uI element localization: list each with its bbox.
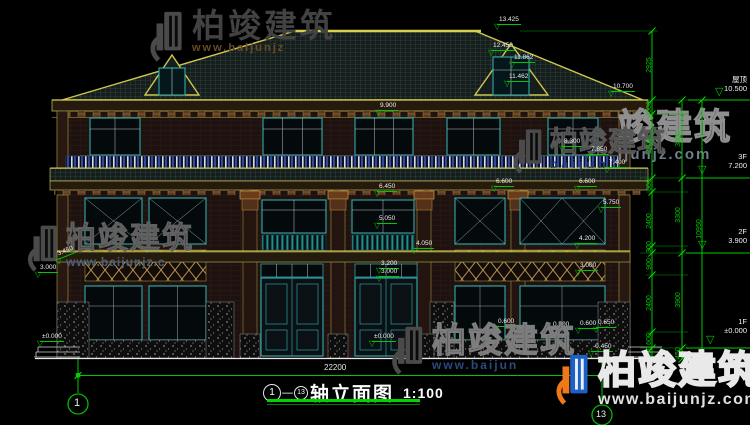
elevation-marker: 11.862▽ [512,54,535,63]
level-triangle-icon: ▽ [493,325,499,333]
elevation-marker: ±0.000▽ [40,333,64,342]
level-triangle-icon: ▽ [35,271,41,279]
level-value: 7.200 [728,161,747,170]
elevation-marker: 4.050▽ [414,240,434,249]
level-triangle-icon: ▽ [588,350,594,358]
level-triangle-icon: ▽ [608,90,614,98]
title-underline-thin [267,404,420,405]
level-triangle-icon: ▽ [509,61,515,69]
level-label: 3F7.200 [728,153,747,170]
elevation-marker: 11.462▽ [507,73,530,82]
vertical-dimension: 3300 [675,191,683,239]
axis-bubble-left: 1 [74,397,80,409]
level-value: ±0.000 [724,326,747,335]
elevation-marker: 6.450▽ [377,183,397,192]
elevation-marker: 9.900▽ [378,102,398,111]
elevation-marker: 0.650▽ [596,319,616,328]
title-underline [267,399,420,402]
level-triangle-icon: ▽ [575,269,581,277]
vertical-dimension: 2925 [646,41,654,89]
level-triangle-icon: ▽ [598,206,604,214]
level-triangle-icon: ▽ [376,275,382,283]
elevation-marker: 3.000▽ [379,268,399,277]
elevation-marker: 7.400▽ [607,159,627,168]
level-triangle-icon: ▽ [706,335,714,346]
level-triangle-icon: ▽ [369,340,375,348]
title-axis-separator: — [282,387,293,399]
level-label: 2F3.900 [728,228,747,245]
vertical-dimension: 450 [675,329,683,377]
elevation-marker: 7.850▽ [589,146,609,155]
elevation-marker: 13.425▽ [497,16,521,25]
elevation-marker: 5.750▽ [601,199,621,208]
level-value: 10.500 [724,84,747,93]
level-triangle-icon: ▽ [374,222,380,230]
level-triangle-icon: ▽ [494,23,500,31]
vertical-dimension: 3900 [675,276,683,324]
vertical-dimension: 3300 [675,115,683,163]
level-triangle-icon: ▽ [698,165,706,176]
level-triangle-icon: ▽ [491,185,497,193]
level-triangle-icon: ▽ [574,242,580,250]
level-triangle-icon: ▽ [375,109,381,117]
elevation-marker: 4.200▽ [577,235,597,244]
elevation-marker: 5.050▽ [377,215,397,224]
elevation-marker: 3.450▽ [55,244,77,260]
level-triangle-icon: ▽ [504,80,510,88]
level-triangle-icon: ▽ [586,153,592,161]
level-label: 1F±0.000 [724,318,747,335]
level-triangle-icon: ▽ [574,185,580,193]
overall-width-dimension: 22200 [324,363,346,372]
vertical-dimension: 450 [646,328,654,376]
level-label: 屋顶10.500 [724,76,747,93]
axis-bubble-right: 13 [596,409,606,419]
level-triangle-icon: ▽ [559,145,565,153]
level-triangle-icon: ▽ [548,328,554,336]
level-triangle-icon: ▽ [374,190,380,198]
elevation-marker: 6.600▽ [494,178,514,187]
elevation-marker: 0.600▽ [496,318,516,327]
elevation-marker: 10.700▽ [611,83,635,92]
elevation-marker: ±0.000▽ [372,333,396,342]
level-triangle-icon: ▽ [37,340,43,348]
level-value: 3.900 [728,236,747,245]
elevation-marker: -0.450▽ [591,343,613,352]
elevation-marker: 8.300▽ [562,138,582,147]
level-triangle-icon: ▽ [411,247,417,255]
level-triangle-icon: ▽ [593,326,599,334]
level-triangle-icon: ▽ [488,49,494,57]
elevation-marker: 0.500▽ [551,321,571,330]
annotation-layer: 22200 1 13 1 — 13 轴立面图 1:100 13.425▽12.4… [0,0,750,425]
elevation-marker: 12.450▽ [491,42,515,51]
elevation-marker: 3.000▽ [38,264,58,273]
level-triangle-icon: ▽ [575,327,581,335]
elevation-marker: 6.600▽ [577,178,597,187]
title-axis-to-bubble: 13 [294,386,308,400]
level-triangle-icon: ▽ [715,87,723,98]
elevation-marker: 3.000▽ [578,262,598,271]
level-triangle-icon: ▽ [604,166,610,174]
level-triangle-icon: ▽ [698,240,706,251]
